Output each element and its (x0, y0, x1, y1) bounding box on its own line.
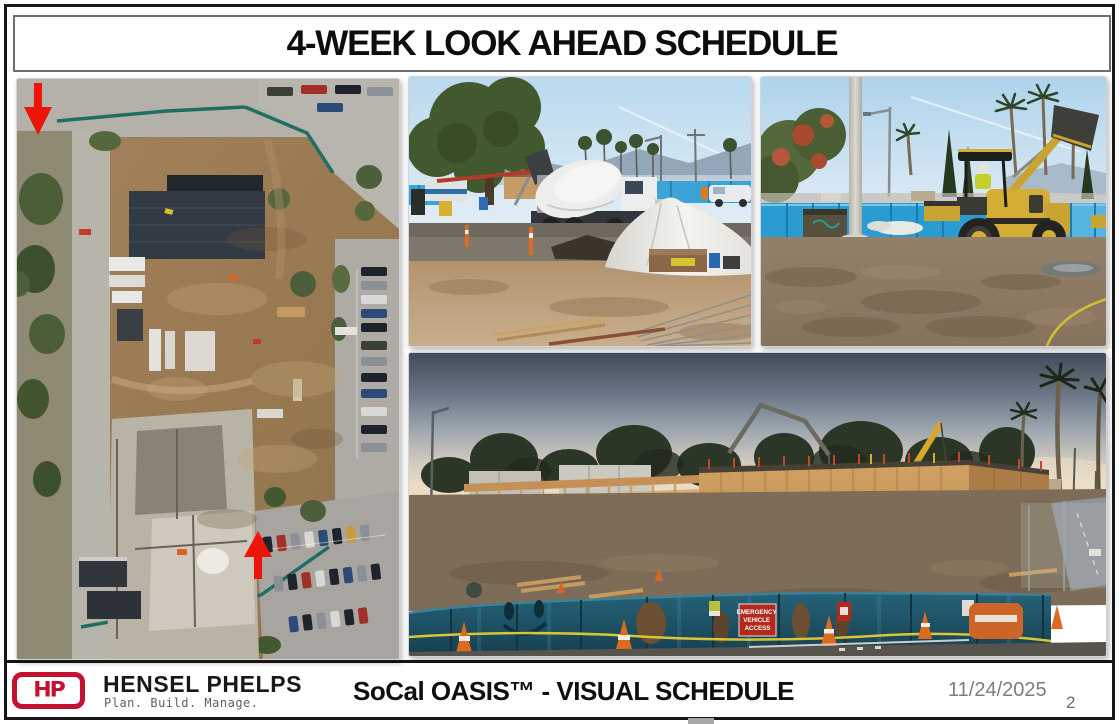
bottom-edge-artifact (688, 718, 714, 724)
hensel-phelps-logo: HP (12, 672, 85, 709)
slide-title: 4-WEEK LOOK AHEAD SCHEDULE (287, 24, 838, 64)
wheel-loader-image (761, 77, 1106, 346)
photo-aerial-site (16, 78, 400, 660)
building-framing-image: EMERGENCY VEHICLE ACCESS (409, 353, 1106, 656)
emergency-access-sign: EMERGENCY VEHICLE ACCESS (737, 604, 779, 636)
photo-wheel-loader (760, 76, 1107, 347)
title-banner: 4-WEEK LOOK AHEAD SCHEDULE (13, 15, 1111, 72)
photo-building-framing: EMERGENCY VEHICLE ACCESS (408, 352, 1107, 657)
footer-date: 11/24/2025 (948, 679, 1047, 702)
concrete-truck-image (409, 77, 751, 346)
brand-tagline: Plan. Build. Manage. (104, 696, 259, 710)
footer-subtitle: SoCal OASIS™ - VISUAL SCHEDULE (346, 676, 801, 707)
photo-concrete-truck (408, 76, 752, 347)
footer-divider (7, 660, 1113, 663)
brand-name: HENSEL PHELPS (103, 671, 302, 698)
slide: { "slide": { "title": "4-WEEK LOOK AHEAD… (0, 0, 1120, 724)
aerial-site-image (17, 79, 399, 659)
footer-page-number: 2 (1066, 693, 1075, 713)
logo-monogram: HP (33, 679, 64, 703)
